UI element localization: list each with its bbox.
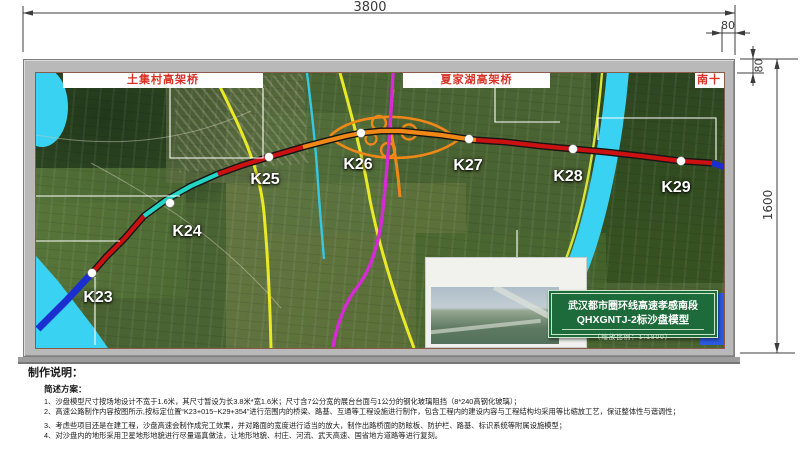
station-label-k23: K23 — [76, 289, 120, 307]
satellite-map: 土集村高架桥 夏家湖高架桥 南十 K23 K24 K25 K26 K27 K28… — [36, 73, 724, 348]
station-label-k24: K24 — [165, 223, 209, 241]
bridge-label-tujicun: 土集村高架桥 — [63, 73, 263, 88]
notes-subheading: 简述方案： — [44, 383, 798, 395]
dim-right-height: 1600 — [761, 185, 775, 225]
production-notes: 制作说明： 简述方案： 1、沙盘模型尺寸按场地设计不宽于1.6米，其尺寸暂设为长… — [28, 364, 798, 441]
title-line-1: 武汉都市圈环线高速孝感南段 — [552, 297, 714, 312]
photo-road — [431, 319, 541, 336]
aerial-photo — [431, 287, 559, 344]
existing-road-cyan — [307, 73, 324, 259]
station-label-k26: K26 — [336, 156, 380, 174]
existing-road-magenta — [333, 73, 393, 347]
title-divider — [562, 329, 704, 330]
dim-top-width: 3800 — [340, 0, 400, 15]
model-frame-shadow — [18, 357, 740, 364]
title-line-2: QHXGNTJ-2标沙盘模型 — [552, 312, 714, 327]
note-item: 2、高速公路制作内容按图所示,按标定位置“K23+015~K29+354”进行范… — [44, 407, 798, 417]
station-label-k27: K27 — [446, 157, 490, 175]
bridge-label-nanshi: 南十 — [695, 73, 724, 88]
existing-road-yellow-west — [213, 73, 271, 348]
route-segment-red — [218, 147, 303, 174]
route-segment-blue-east — [712, 163, 724, 167]
title-plate-inner: 武汉都市圈环线高速孝感南段 QHXGNTJ-2标沙盘模型 （缩放比例：1:180… — [551, 293, 715, 335]
note-item: 3、考虑些项目还是在建工程，沙盘高速会制作成完工效果，并对路面的宽度进行适当的放… — [44, 421, 798, 431]
note-item: 1、沙盘模型尺寸按场地设计不宽于1.6米，其尺寸暂设为长3.8米*宽1.6米；尺… — [44, 397, 798, 407]
station-label-k25: K25 — [243, 171, 287, 189]
bridge-label-xiajiahu: 夏家湖高架桥 — [403, 73, 550, 88]
route-segment-red — [92, 216, 144, 273]
station-label-k29: K29 — [654, 179, 698, 197]
existing-road-yellow-center — [340, 73, 414, 348]
dim-top-border-height: 80 — [753, 53, 766, 79]
model-drawing-sheet: 3800 80 80 1600 — [0, 0, 800, 458]
notes-heading: 制作说明： — [28, 364, 798, 380]
note-item: 4、对沙盘内的地形采用卫星地形地貌进行尽量逼真做法，让地形地貌、村庄、河流、武天… — [44, 431, 798, 441]
title-scale-note: （缩放比例：1:1800） — [552, 331, 714, 341]
title-plate: 武汉都市圈环线高速孝感南段 QHXGNTJ-2标沙盘模型 （缩放比例：1:180… — [548, 290, 718, 338]
station-label-k28: K28 — [546, 168, 590, 186]
dim-right-border-width: 80 — [714, 19, 742, 32]
